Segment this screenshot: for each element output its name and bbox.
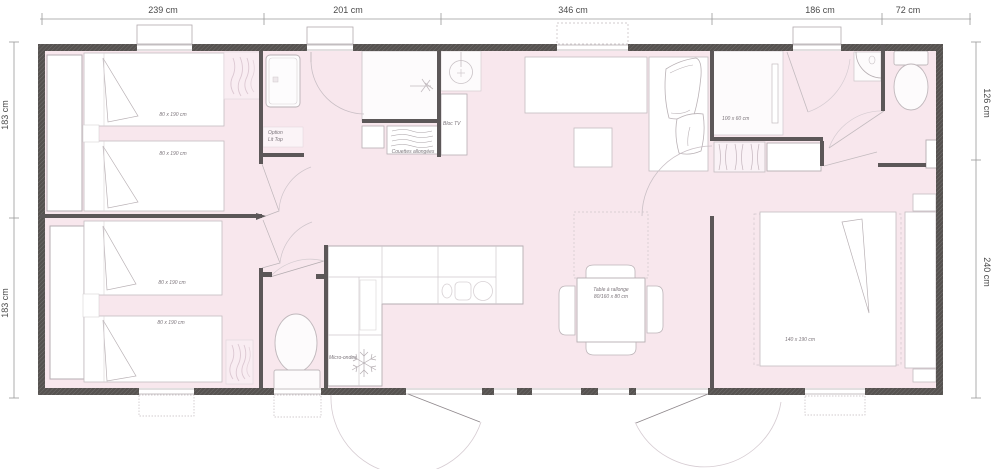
svg-text:239 cm: 239 cm [148, 5, 178, 15]
svg-text:183 cm: 183 cm [0, 288, 10, 318]
svg-text:Table à rallonge: Table à rallonge [593, 287, 629, 293]
svg-text:80 x 190 cm: 80 x 190 cm [157, 320, 184, 326]
svg-text:140 x 190 cm: 140 x 190 cm [785, 337, 815, 343]
svg-text:186 cm: 186 cm [805, 5, 835, 15]
svg-text:Lit Top: Lit Top [268, 137, 283, 143]
svg-text:72 cm: 72 cm [896, 5, 921, 15]
svg-text:80/160 x 80 cm: 80/160 x 80 cm [594, 294, 628, 300]
svg-text:Option: Option [268, 130, 283, 136]
svg-text:Couettes allongées: Couettes allongées [392, 149, 435, 155]
svg-text:80 x 190 cm: 80 x 190 cm [158, 280, 185, 286]
svg-text:240 cm: 240 cm [982, 257, 992, 287]
svg-text:183 cm: 183 cm [0, 100, 10, 130]
svg-text:346 cm: 346 cm [558, 5, 588, 15]
svg-text:100 x 60 cm: 100 x 60 cm [722, 116, 749, 122]
svg-text:Micro-ondes: Micro-ondes [329, 355, 357, 361]
svg-text:Bloc TV: Bloc TV [443, 121, 461, 127]
svg-text:201 cm: 201 cm [333, 5, 363, 15]
svg-text:80 x 190 cm: 80 x 190 cm [159, 112, 186, 118]
svg-text:126 cm: 126 cm [982, 88, 992, 118]
svg-text:80 x 190 cm: 80 x 190 cm [159, 151, 186, 157]
